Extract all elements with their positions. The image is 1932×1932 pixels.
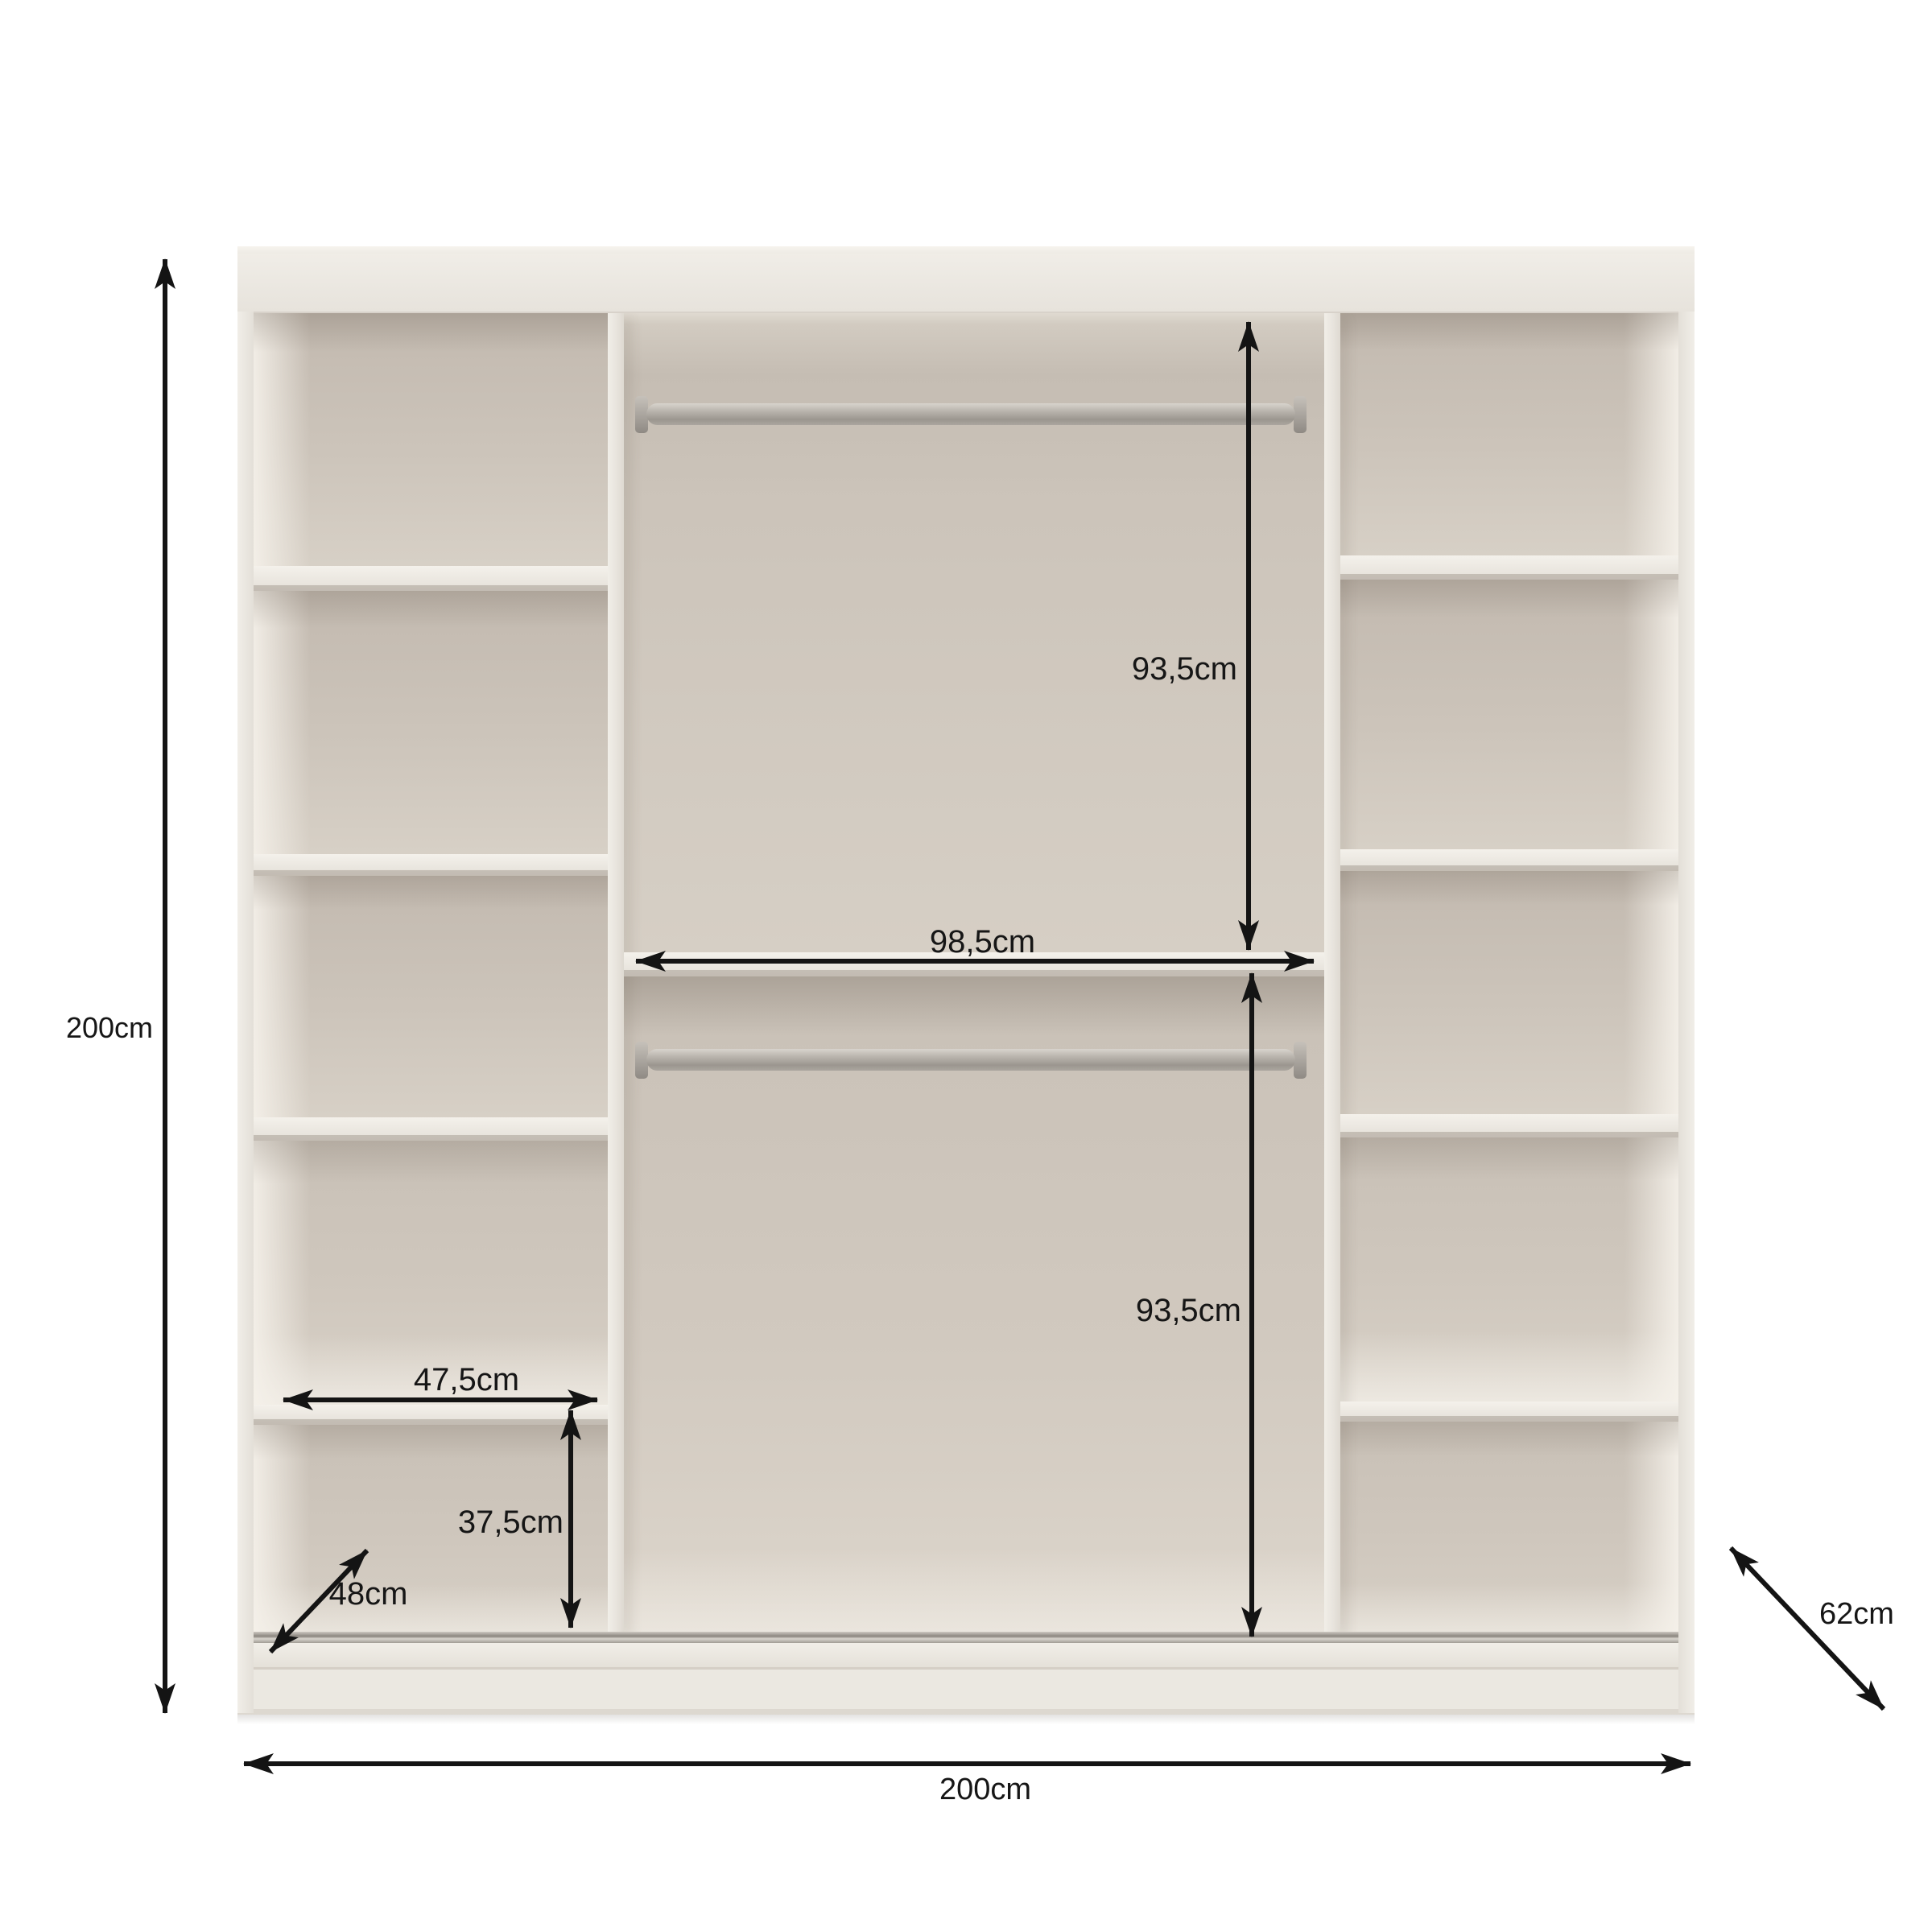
left-shelf-3	[254, 1117, 608, 1141]
left-column-cell-1	[254, 312, 608, 566]
wardrobe-dimension-diagram: 200cm 200cm 62cm 48cm 47,5cm 37,5cm 98,5…	[0, 0, 1932, 1932]
bottom-edge	[237, 1709, 1695, 1715]
top-hanging-rail	[646, 403, 1295, 425]
right-shelf-2	[1340, 849, 1678, 871]
right-column-cell-3	[1340, 865, 1678, 1114]
left-shelf-2	[254, 854, 608, 876]
right-column-cell-5	[1340, 1416, 1678, 1642]
dim-label-middle-section-width: 98,5cm	[908, 926, 1057, 958]
left-shelf-4	[254, 1405, 608, 1425]
wardrobe-right-side-panel	[1678, 312, 1695, 1713]
dim-label-bottom-section-height: 37,5cm	[425, 1506, 563, 1538]
left-divider-panel	[608, 312, 624, 1642]
right-column-cell-4	[1340, 1132, 1678, 1402]
right-shelf-4	[1340, 1402, 1678, 1422]
dim-label-width: 200cm	[889, 1774, 1082, 1805]
wardrobe-top-panel	[237, 254, 1695, 313]
left-shelf-1	[254, 566, 608, 591]
floor-shadow	[237, 1715, 1695, 1724]
left-column-cell-3	[254, 870, 608, 1117]
right-column-cell-2	[1340, 574, 1678, 849]
right-shelf-3	[1340, 1114, 1678, 1137]
dim-label-depth: 62cm	[1819, 1599, 1894, 1629]
wardrobe-left-side-panel	[237, 312, 254, 1713]
bottom-rail-right-flange	[1294, 1042, 1307, 1079]
dim-label-shelf-width: 47,5cm	[392, 1364, 541, 1396]
dim-label-height: 200cm	[24, 1013, 153, 1042]
dim-label-lower-hanging-height: 93,5cm	[1111, 1294, 1241, 1327]
dim-label-shelf-depth: 48cm	[310, 1578, 427, 1610]
right-column-cell-1	[1340, 312, 1678, 555]
top-rail-right-flange	[1294, 396, 1307, 433]
top-surface-edge	[237, 246, 1695, 254]
left-column-cell-2	[254, 585, 608, 854]
sliding-door-track	[254, 1632, 1678, 1643]
right-shelf-1	[1340, 555, 1678, 580]
dim-label-upper-hanging-height: 93,5cm	[1107, 653, 1237, 685]
bottom-hanging-rail	[646, 1049, 1295, 1071]
plinth	[254, 1667, 1678, 1711]
right-divider-panel	[1324, 312, 1340, 1642]
floor-front-edge	[254, 1643, 1678, 1667]
